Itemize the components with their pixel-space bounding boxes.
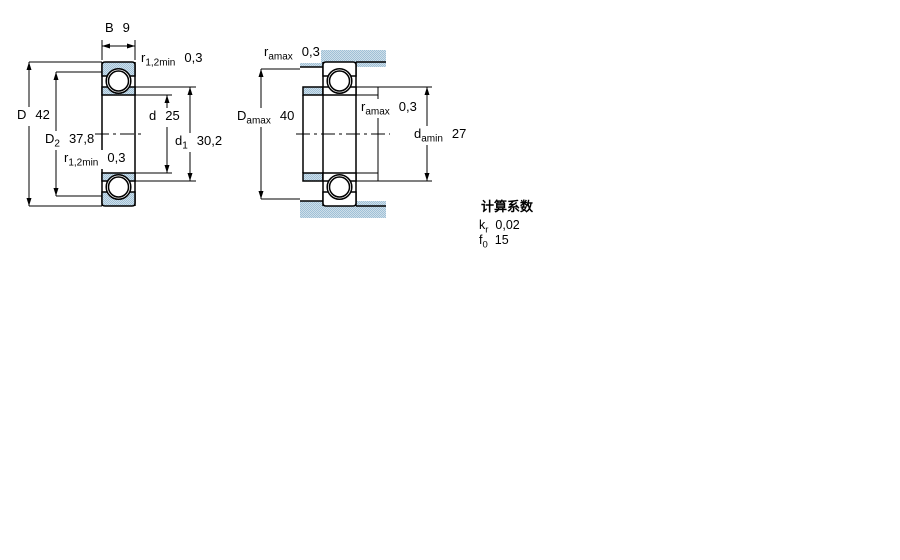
dim-value: 30,2: [197, 133, 222, 148]
dim-value: 0,3: [107, 150, 125, 165]
dim-subscript: 1,2min: [145, 58, 175, 69]
shaft-shoulder-top: [303, 87, 323, 95]
factor-subscript: 0: [482, 240, 487, 251]
dim-label-d1: d130,2: [174, 133, 223, 152]
dim-value: 40: [280, 108, 294, 123]
diagram-linework: [0, 0, 900, 560]
dim-subscript: amax: [365, 107, 389, 118]
dim-label-d: d25: [148, 108, 181, 127]
ball-bottom: [109, 177, 129, 197]
dim-symbol: D: [45, 131, 54, 146]
dim-subscript: amax: [268, 52, 292, 63]
factor-f0: f015: [479, 233, 509, 253]
dim-value: 0,3: [184, 50, 202, 65]
dim-value: 9: [123, 20, 130, 35]
dim-symbol: d: [149, 108, 156, 123]
dim-value: 42: [35, 107, 49, 122]
dim-label-ramax-mid: ramax0,3: [360, 99, 418, 118]
dim-label-ramax-top: ramax0,3: [263, 44, 321, 63]
dim-label-r12-top: r1,2min0,3: [140, 50, 203, 69]
dim-subscript: 1: [182, 141, 188, 152]
shaft-shoulder-bottom: [303, 173, 323, 181]
dim-label-damin: damin27: [413, 126, 467, 145]
dim-subscript: 1,2min: [68, 158, 98, 169]
dim-value: 37,8: [69, 131, 94, 146]
dim-label-r12-bottom: r1,2min0,3: [63, 150, 126, 169]
dim-subscript: amax: [246, 116, 270, 127]
dim-symbol: B: [105, 20, 114, 35]
dim-value: 0,3: [399, 99, 417, 114]
dim-label-D2: D237,8: [44, 131, 95, 150]
dim-label-B: B9: [104, 20, 131, 39]
dim-value: 25: [165, 108, 179, 123]
right-view-drawing: [259, 50, 433, 218]
ball-top: [330, 71, 350, 91]
calculation-factors-title: 计算系数: [481, 196, 533, 215]
dim-label-Damax: Damax40: [236, 108, 295, 127]
dim-symbol: D: [17, 107, 26, 122]
dim-value: 27: [452, 126, 466, 141]
dim-value: 0,3: [302, 44, 320, 59]
dim-label-D: D42: [16, 107, 51, 126]
ball-top: [109, 71, 129, 91]
bearing-diagram: B9 r1,2min0,3 D42 D237,8 r1,2min0,3 d25 …: [0, 0, 900, 560]
factor-value: 15: [495, 233, 509, 247]
dim-subscript: 2: [54, 139, 60, 150]
dim-symbol: D: [237, 108, 246, 123]
ball-bottom: [330, 177, 350, 197]
dim-subscript: amin: [421, 134, 443, 145]
factor-value: 0,02: [495, 218, 519, 232]
